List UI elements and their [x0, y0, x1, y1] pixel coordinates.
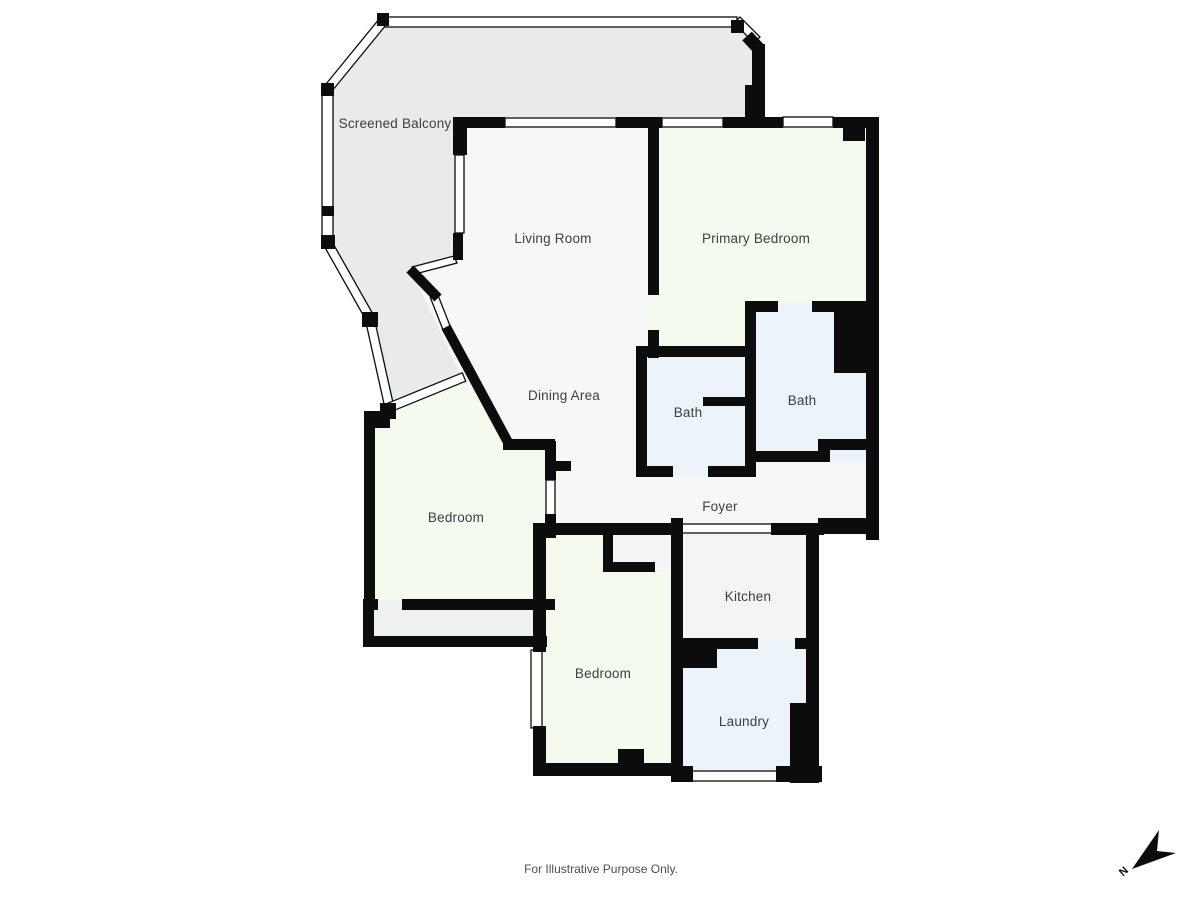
label-bedroom-left: Bedroom — [428, 510, 484, 525]
label-screened-balcony: Screened Balcony — [339, 116, 452, 131]
north-label: N — [1117, 865, 1131, 879]
compass: N — [1117, 830, 1176, 879]
north-arrow-icon — [1132, 830, 1176, 869]
primary-balcony-door — [662, 118, 723, 127]
label-dining-area: Dining Area — [528, 388, 600, 403]
kitchen-entry-door — [677, 524, 772, 533]
label-bath-left: Bath — [674, 405, 703, 420]
floor-plan: Screened Balcony Living Room Primary Bed… — [0, 0, 1200, 900]
label-laundry: Laundry — [719, 714, 769, 729]
laundry-bottom-window — [691, 771, 778, 781]
balcony-top-window — [383, 17, 737, 27]
living-left-window — [455, 155, 464, 233]
label-bedroom-bottom: Bedroom — [575, 666, 631, 681]
label-foyer: Foyer — [702, 499, 738, 514]
primary-bedroom-top-window — [783, 117, 833, 127]
label-kitchen: Kitchen — [725, 589, 771, 604]
dining-foyer-door — [546, 480, 555, 516]
label-bath-right: Bath — [788, 393, 817, 408]
bedroom-bottom-left-window — [531, 650, 542, 728]
disclaimer-text: For Illustrative Purpose Only. — [524, 862, 678, 876]
living-balcony-door — [505, 118, 616, 127]
label-primary-bedroom: Primary Bedroom — [702, 231, 810, 246]
kitchen-floor — [676, 523, 818, 648]
label-living-room: Living Room — [514, 231, 591, 246]
floor-plan-canvas: Screened Balcony Living Room Primary Bed… — [0, 0, 1200, 900]
